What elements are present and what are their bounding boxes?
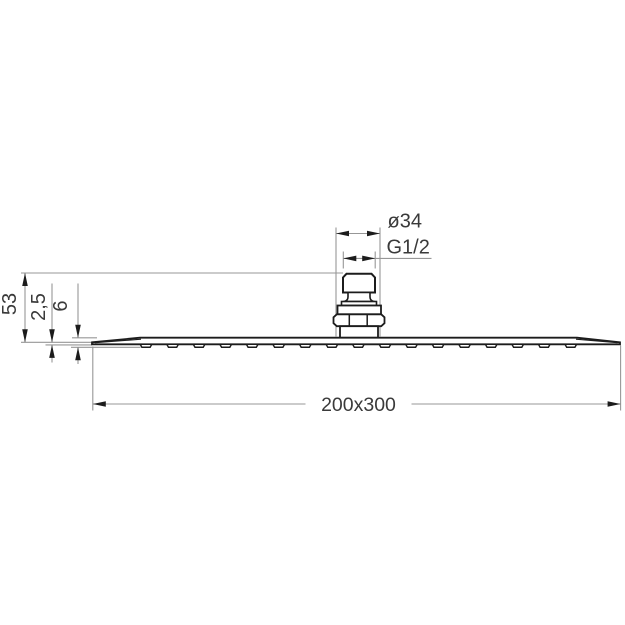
spray-nozzle: [512, 344, 524, 347]
spray-nozzle: [379, 344, 391, 347]
spray-nozzle: [220, 344, 232, 347]
arrow-width-right: [608, 401, 621, 407]
spray-nozzle: [273, 344, 285, 347]
label-plate-thickness: 2,5: [28, 293, 50, 321]
label-plate-nozzle-height: 6: [50, 300, 72, 311]
connector-base: [340, 326, 378, 337]
spray-nozzle: [193, 344, 205, 347]
spray-nozzle: [140, 344, 152, 347]
arrow-width-left: [93, 401, 106, 407]
label-diameter: ø34: [388, 211, 422, 233]
spray-nozzle: [326, 344, 338, 347]
arrow-thread-right: [362, 256, 375, 262]
drawing-page: ø34 G1/2 53 2,5 6 200x300: [0, 0, 625, 625]
arrowheads-layer: [22, 231, 620, 407]
spray-nozzle: [300, 344, 312, 347]
arrow-height-bottom: [22, 329, 28, 342]
shower-plate: [92, 338, 620, 345]
technical-drawing: ø34 G1/2 53 2,5 6 200x300: [0, 0, 625, 625]
spray-nozzle: [353, 344, 365, 347]
connector-neck: [344, 293, 375, 302]
spray-nozzle: [485, 344, 497, 347]
label-height-total: 53: [0, 293, 21, 315]
arrow-height-top: [22, 273, 28, 286]
spray-nozzle: [539, 344, 551, 347]
spray-nozzle: [432, 344, 444, 347]
arrow-thickness-bottom: [49, 345, 55, 358]
object-layer: [92, 274, 620, 348]
spray-nozzle: [246, 344, 258, 347]
dimension-lines-layer: [21, 228, 621, 411]
spray-nozzle: [565, 344, 577, 347]
arrow-thread-left: [343, 256, 356, 262]
connector-body: [338, 306, 382, 315]
spray-nozzle: [459, 344, 471, 347]
label-plate-size: 200x300: [321, 394, 396, 416]
arrow-diameter-left: [336, 231, 349, 237]
arrow-thickness-top: [49, 329, 55, 342]
arrow-nozzle-height-bottom: [75, 347, 81, 360]
spray-nozzle: [406, 344, 418, 347]
arrow-nozzle-height-top: [75, 325, 81, 338]
connector-pipe: [343, 274, 375, 293]
label-thread: G1/2: [387, 237, 430, 259]
spray-nozzle: [167, 344, 179, 347]
connector-hex-nut: [334, 314, 385, 326]
arrow-diameter-right: [367, 231, 380, 237]
